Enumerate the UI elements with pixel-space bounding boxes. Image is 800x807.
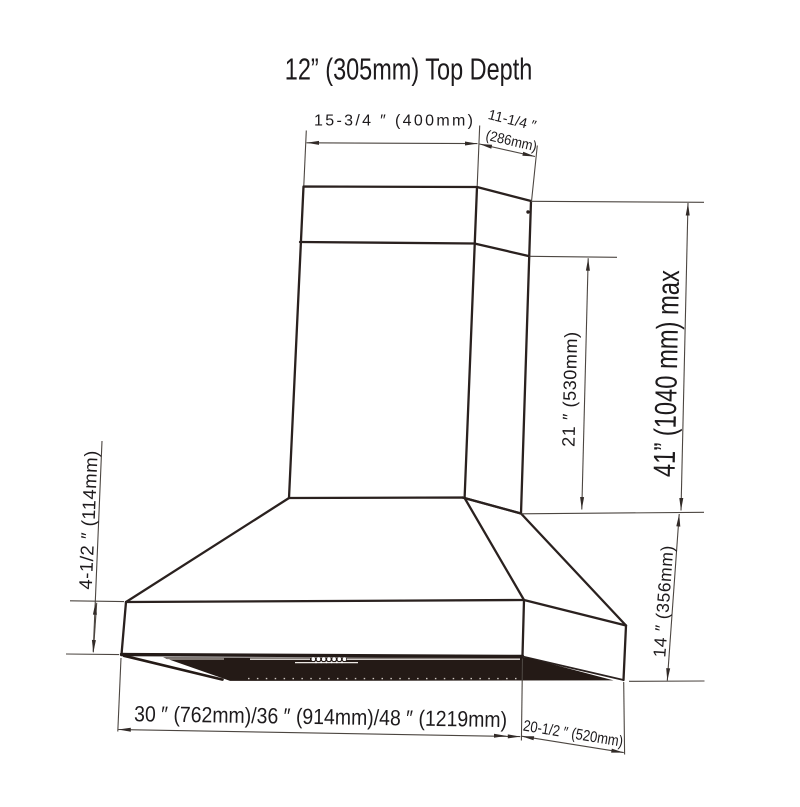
svg-text:4-1/2 ″ (114mm): 4-1/2 ″ (114mm) (75, 450, 102, 590)
svg-text:21 ″ (530mm): 21 ″ (530mm) (559, 332, 582, 447)
svg-text:41” (1040 mm) max: 41” (1040 mm) max (648, 270, 687, 478)
svg-text:15-3/4 ″ (400mm): 15-3/4 ″ (400mm) (314, 112, 473, 129)
svg-text:20-1/2 ″ (520mm): 20-1/2 ″ (520mm) (522, 718, 624, 751)
svg-text:12” (305mm) Top Depth: 12” (305mm) Top Depth (285, 52, 533, 87)
svg-text:30 ″ (762mm)/36 ″ (914mm)/48 ″: 30 ″ (762mm)/36 ″ (914mm)/48 ″ (1219mm) (134, 701, 507, 732)
svg-text:14 ″ (356mm): 14 ″ (356mm) (649, 545, 677, 658)
